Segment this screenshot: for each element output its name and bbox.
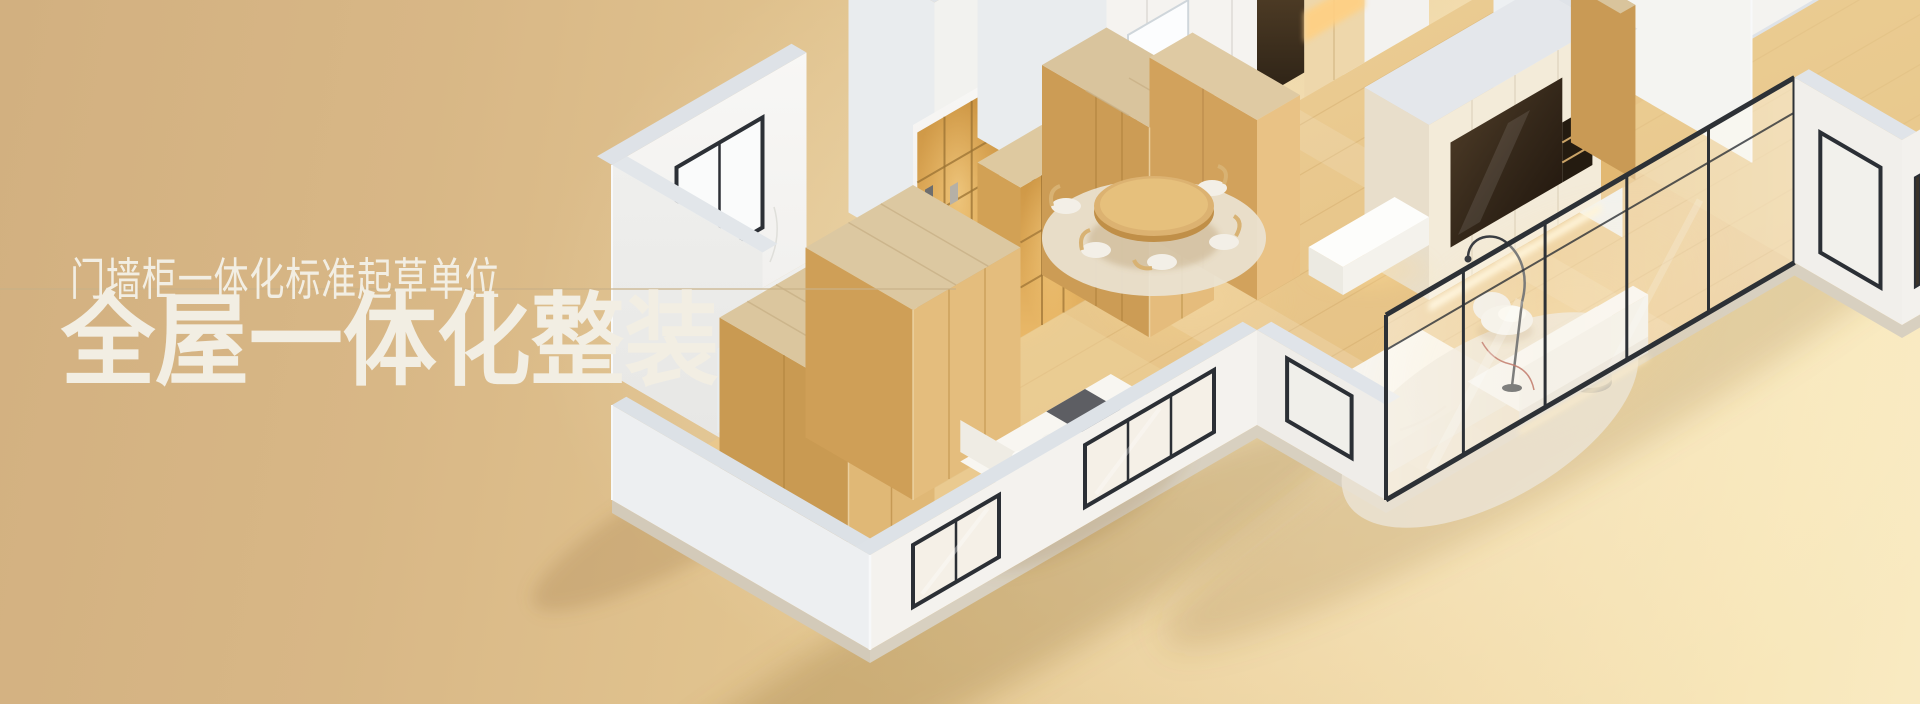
banner-headline: 全屋一体化整装 <box>61 290 719 395</box>
hero-banner: 门墙柜一体化标准起草单位 全屋一体化整装 <box>0 0 1920 704</box>
